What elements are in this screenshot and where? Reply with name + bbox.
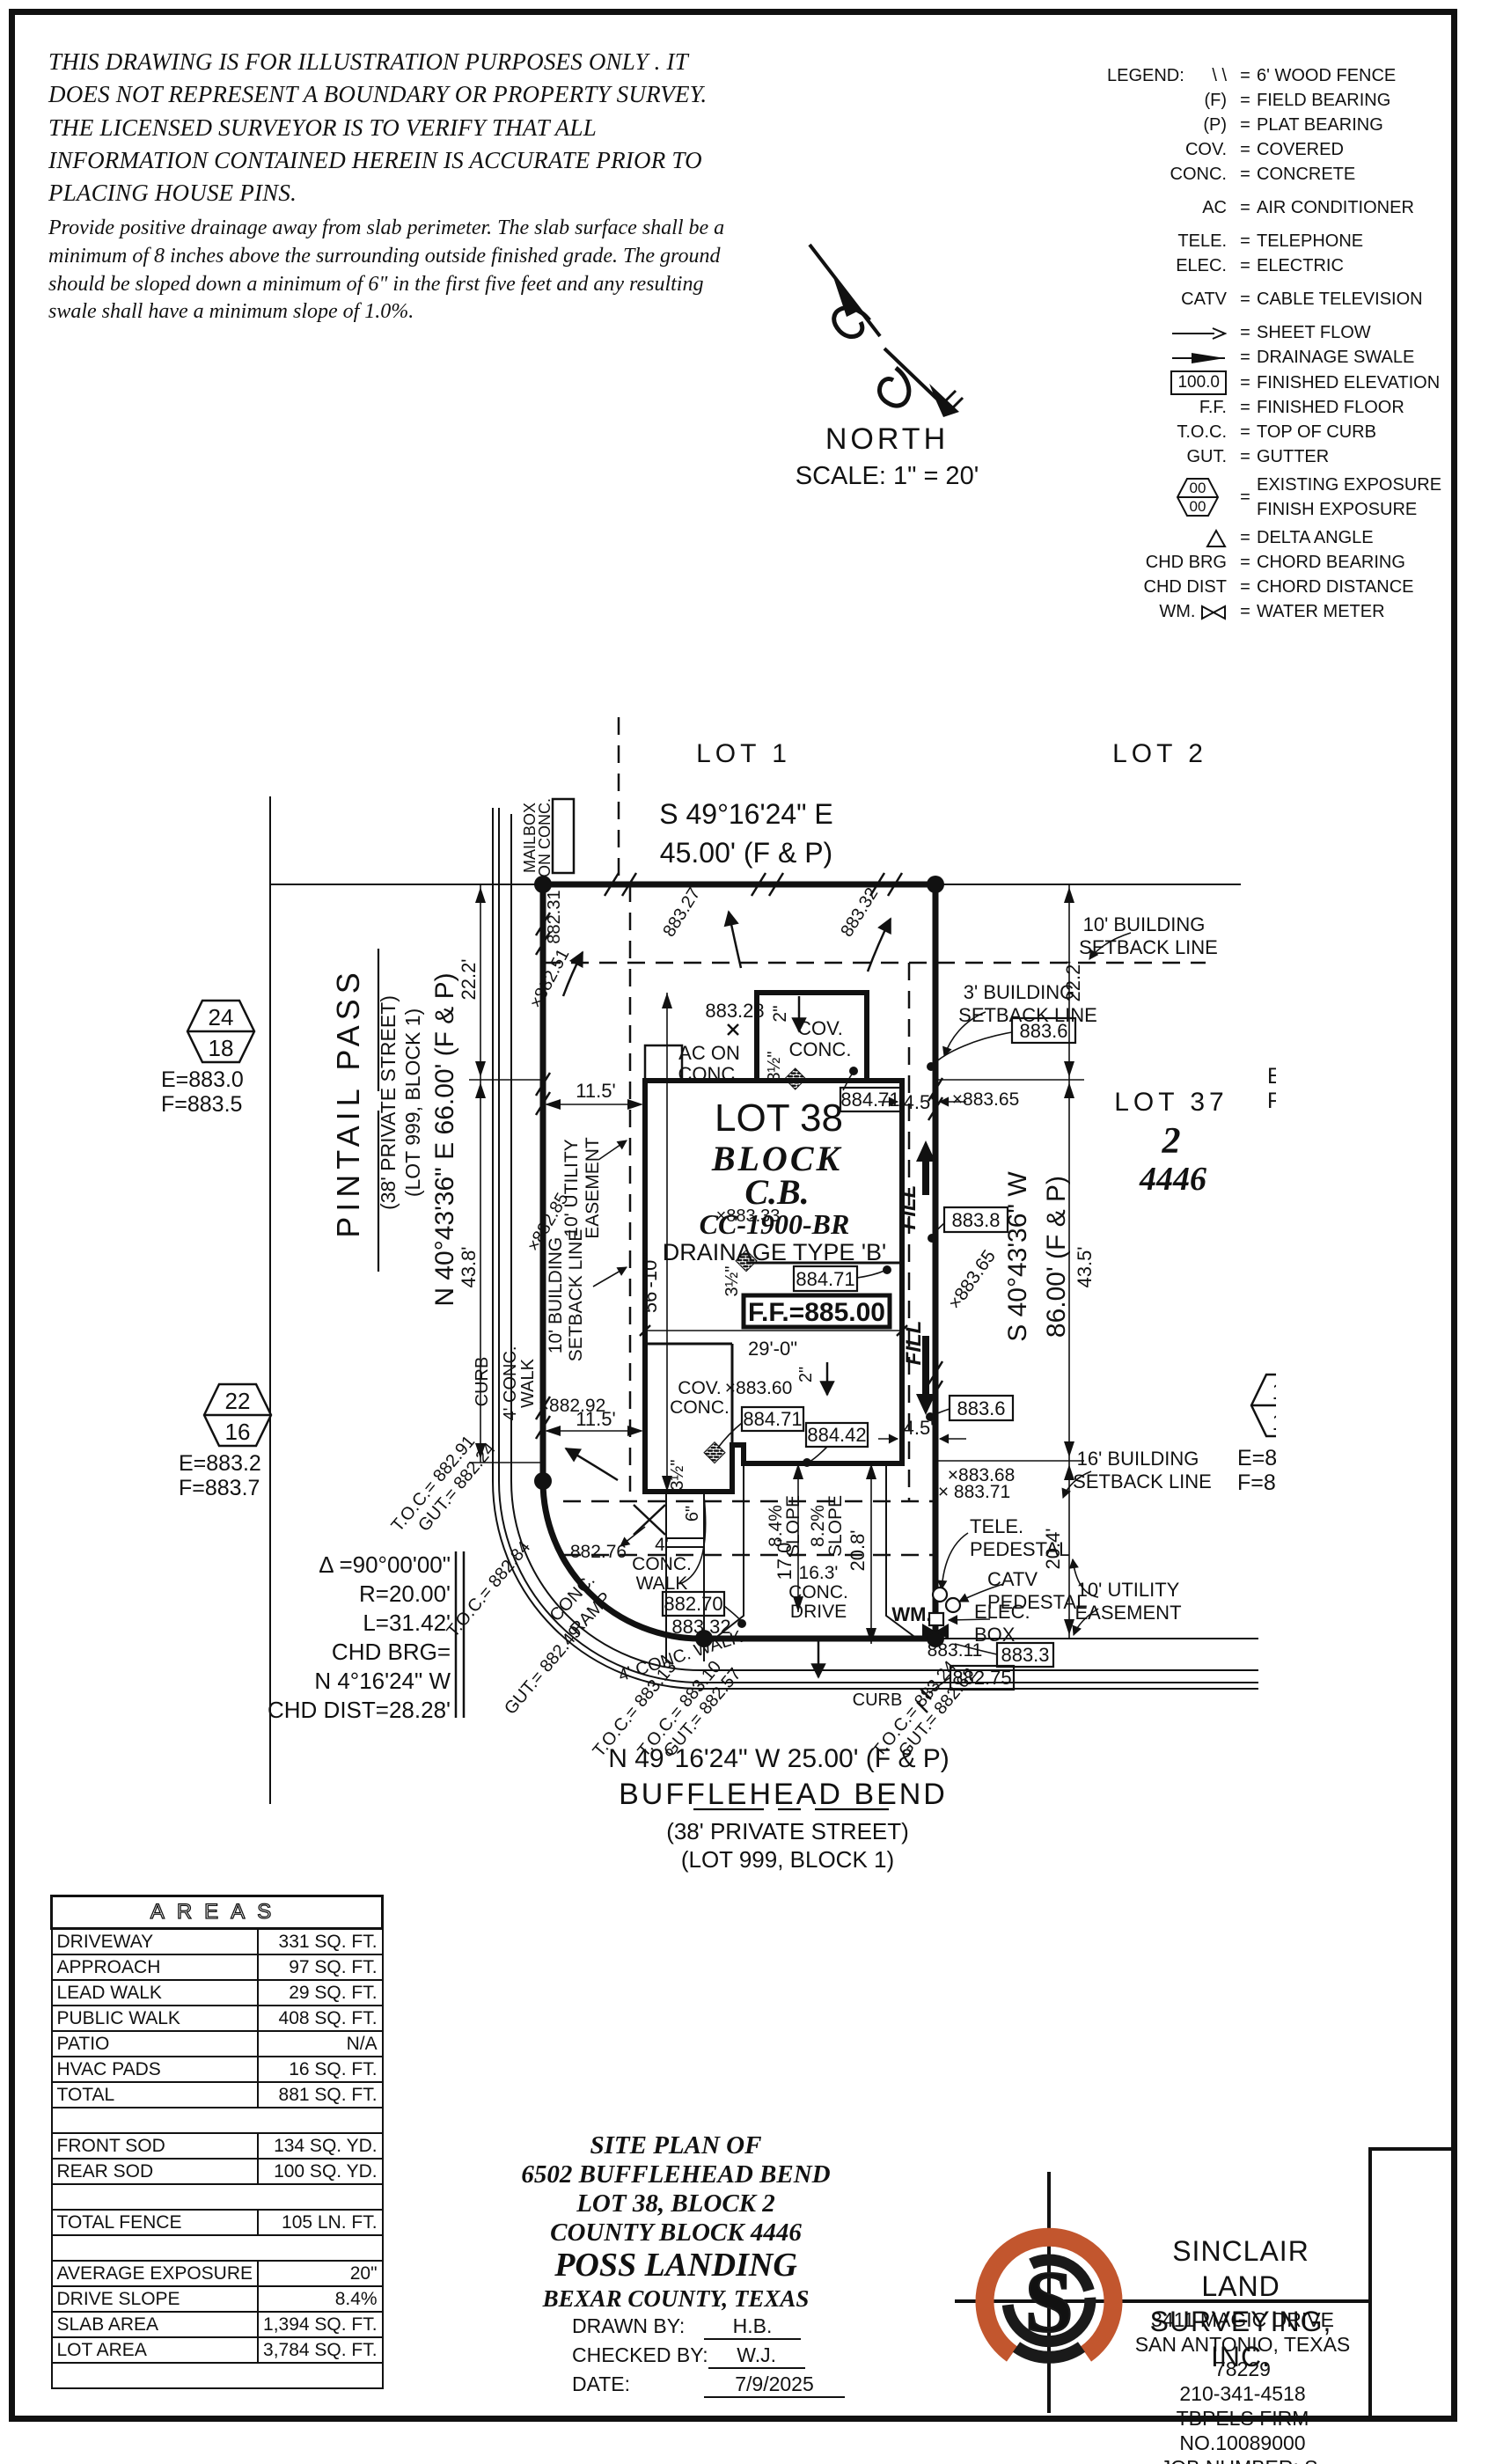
table-row-blank bbox=[52, 2363, 383, 2388]
legend-sym: TELE. bbox=[1107, 229, 1234, 253]
legend-row: CHD DIST=CHORD DISTANCE bbox=[1107, 575, 1452, 599]
legend-desc: TELEPHONE bbox=[1257, 229, 1452, 253]
curve-chd-brg-label: CHD BRG= bbox=[332, 1639, 451, 1665]
curb-label-left: CURB bbox=[473, 1357, 492, 1407]
title-block: SITE PLAN OF 6502 BUFFLEHEAD BEND LOT 38… bbox=[502, 2131, 850, 2313]
setback-3-label-1: 3' BUILDING bbox=[964, 981, 1074, 1003]
firm-registration: TBPELS FIRM NO.10089000 bbox=[1119, 2406, 1366, 2455]
equals: = bbox=[1234, 395, 1257, 420]
equals: = bbox=[1234, 287, 1257, 312]
scale-label: SCALE: 1" = 20' bbox=[796, 462, 979, 490]
legend-desc: WATER METER bbox=[1257, 599, 1452, 624]
boxed-elevation: 883.3 bbox=[1001, 1644, 1049, 1666]
dim-2in-drive: 2" bbox=[796, 1367, 816, 1382]
legend: LEGEND: \ \ = 6' WOOD FENCE (F)=FIELD BE… bbox=[1107, 63, 1452, 624]
water-meter-icon: WM. bbox=[1107, 599, 1234, 624]
drainage-type: DRAINAGE TYPE 'B' bbox=[663, 1239, 886, 1265]
areas-title: AREAS bbox=[52, 1896, 383, 1929]
title-lot-block: LOT 38, BLOCK 2 bbox=[502, 2189, 850, 2218]
area-label: LEAD WALK bbox=[52, 1980, 259, 2006]
catv-pedestal-icon bbox=[946, 1598, 960, 1612]
wood-fence-icon: \ \ bbox=[1192, 63, 1234, 88]
title-county-block: COUNTY BLOCK 4446 bbox=[502, 2218, 850, 2248]
equals: = bbox=[1234, 550, 1257, 575]
table-row: REAR SOD100 SQ. YD. bbox=[52, 2159, 383, 2184]
disclaimer-caps: THIS DRAWING IS FOR ILLUSTRATION PURPOSE… bbox=[48, 46, 752, 209]
firm-address: 3411 MAGIC DRIVE SAN ANTONIO, TEXAS 7822… bbox=[1119, 2307, 1366, 2464]
setback-10-label-1: 10' BUILDING bbox=[1083, 913, 1206, 935]
dim-3half: 3½" bbox=[765, 1052, 784, 1082]
lot37-block: 2 bbox=[1162, 1121, 1181, 1162]
area-label: PUBLIC WALK bbox=[52, 2006, 259, 2031]
elec-box-label-1: ELEC. bbox=[974, 1601, 1030, 1623]
legend-title: LEGEND: bbox=[1107, 63, 1192, 88]
catv-pedestal-label-1: CATV bbox=[987, 1568, 1038, 1590]
bufflehead-sub-2: (LOT 999, BLOCK 1) bbox=[681, 1846, 894, 1873]
dim-22-2-left: 22.2' bbox=[458, 958, 480, 1000]
legend-desc: CONCRETE bbox=[1257, 162, 1452, 187]
table-row: TOTAL881 SQ. FT. bbox=[52, 2082, 383, 2108]
hexagon-existing: 22 bbox=[225, 1388, 251, 1414]
pintail-sub-2: (LOT 999, BLOCK 1) bbox=[401, 1008, 424, 1197]
bearing-right-1: S 40°43'36" W bbox=[1003, 1171, 1032, 1342]
utility-easement-right-1: 10' UTILITY bbox=[1077, 1579, 1180, 1601]
area-label: DRIVE SLOPE bbox=[52, 2286, 259, 2312]
dim-43-8: 43.8' bbox=[458, 1246, 480, 1287]
table-row: DRIVE SLOPE8.4% bbox=[52, 2286, 383, 2312]
spot-elevation: 883.28 bbox=[705, 1000, 764, 1022]
drainage-swale-arrow-icon bbox=[1107, 345, 1234, 370]
spot-elevation: 882.31 bbox=[545, 890, 564, 943]
legend-row-finished-elevation: 100.0 =FINISHED ELEVATION bbox=[1107, 370, 1452, 395]
drawn-by-value: H.B. bbox=[704, 2314, 801, 2340]
utility-easement-right-2: EASEMENT bbox=[1074, 1602, 1181, 1624]
curb-label-bottom: CURB bbox=[853, 1690, 903, 1710]
dim-6in: 6" bbox=[683, 1506, 702, 1522]
logo-letter: S bbox=[1024, 2253, 1074, 2350]
table-row: SLAB AREA1,394 SQ. FT. bbox=[52, 2312, 383, 2337]
legend-sym: WM. bbox=[1159, 602, 1195, 621]
equals: = bbox=[1234, 320, 1257, 345]
legend-row-fence: LEGEND: \ \ = 6' WOOD FENCE bbox=[1107, 63, 1452, 88]
equals: = bbox=[1234, 137, 1257, 162]
legend-desc-two-line: EXISTING EXPOSUREFINISH EXPOSURE bbox=[1257, 473, 1452, 522]
setback-10-label-2: SETBACK LINE bbox=[1079, 936, 1218, 958]
area-value: 20" bbox=[258, 2261, 383, 2286]
legend-desc: PLAT BEARING bbox=[1257, 113, 1452, 137]
spot-elevation: ×882.51 bbox=[526, 946, 574, 1012]
site-plan-sheet: THIS DRAWING IS FOR ILLUSTRATION PURPOSE… bbox=[0, 0, 1496, 2464]
table-row: PUBLIC WALK408 SQ. FT. bbox=[52, 2006, 383, 2031]
curve-length: L=31.42' bbox=[363, 1610, 451, 1636]
table-row: FRONT SOD134 SQ. YD. bbox=[52, 2133, 383, 2159]
finish-grade: F=883.5 bbox=[161, 1092, 242, 1117]
legend-sym: CONC. bbox=[1107, 162, 1234, 187]
area-label: PATIO bbox=[52, 2031, 259, 2057]
legend-sym: (F) bbox=[1107, 88, 1234, 113]
legend-sym: ELEC. bbox=[1107, 253, 1234, 278]
legend-row-water-meter: WM. =WATER METER bbox=[1107, 599, 1452, 624]
legend-row: (F)=FIELD BEARING bbox=[1107, 88, 1452, 113]
area-value: 331 SQ. FT. bbox=[258, 1929, 383, 1955]
sinclair-logo-icon: S bbox=[968, 2220, 1130, 2382]
drive-dim-1: 16.3' bbox=[799, 1563, 839, 1583]
table-row: PATION/A bbox=[52, 2031, 383, 2057]
lot2-label: LOT 2 bbox=[1112, 739, 1207, 768]
legend-desc: SHEET FLOW bbox=[1257, 320, 1452, 345]
equals: = bbox=[1234, 345, 1257, 370]
setback-lines bbox=[543, 717, 1206, 1555]
setback-16-label-2: SETBACK LINE bbox=[1073, 1470, 1212, 1492]
titleblock-divider-vertical bbox=[1368, 2149, 1372, 2418]
lot37-county-block: 4446 bbox=[1139, 1161, 1206, 1198]
equals: = bbox=[1234, 599, 1257, 624]
ac-pad-label-2: CONC. bbox=[678, 1063, 741, 1085]
legend-sym: COV. bbox=[1107, 137, 1234, 162]
legend-row: AC=AIR CONDITIONER bbox=[1107, 195, 1452, 220]
legend-row: F.F.=FINISHED FLOOR bbox=[1107, 395, 1452, 420]
hexagon-finish: 18 bbox=[209, 1035, 234, 1061]
area-value: 3,784 SQ. FT. bbox=[258, 2337, 383, 2363]
legend-desc: ELECTRIC bbox=[1257, 253, 1452, 278]
area-value: 8.4% bbox=[258, 2286, 383, 2312]
dim-11-5-bottom: 11.5' bbox=[576, 1408, 615, 1430]
boxed-elevation: 884.42 bbox=[807, 1424, 866, 1446]
legend-row: T.O.C.=TOP OF CURB bbox=[1107, 420, 1452, 444]
blank-row bbox=[52, 2108, 383, 2133]
boxed-elevation: 883.8 bbox=[951, 1209, 1000, 1231]
exposure-existing: 00 bbox=[1190, 480, 1206, 496]
curve-chd-dist: CHD DIST=28.28' bbox=[268, 1697, 451, 1723]
legend-row-swale: =DRAINAGE SWALE bbox=[1107, 345, 1452, 370]
covered-conc-rear-2: CONC. bbox=[670, 1397, 730, 1418]
area-value: 105 LN. FT. bbox=[258, 2210, 383, 2235]
boxed-elevation: 884.71 bbox=[796, 1268, 854, 1290]
table-row: TOTAL FENCE105 LN. FT. bbox=[52, 2210, 383, 2235]
exposure-finish: 00 bbox=[1190, 498, 1206, 515]
legend-desc: FIELD BEARING bbox=[1257, 88, 1452, 113]
spot-elevation: ×883.65 bbox=[944, 1246, 1000, 1313]
mailbox-pad bbox=[553, 799, 574, 873]
boxed-elevation: 883.6 bbox=[1019, 1020, 1067, 1042]
tele-pedestal-label-2: PEDESTAL bbox=[970, 1538, 1069, 1560]
area-value: 29 SQ. FT. bbox=[258, 1980, 383, 2006]
area-label: AVERAGE EXPOSURE bbox=[52, 2261, 259, 2286]
setback-left-1: 10' BUILDING bbox=[546, 1237, 566, 1353]
area-label: DRIVEWAY bbox=[52, 1929, 259, 1955]
lot37-label: LOT 37 bbox=[1114, 1088, 1228, 1117]
equals: = bbox=[1234, 485, 1257, 510]
equals: = bbox=[1234, 575, 1257, 599]
legend-desc: GUTTER bbox=[1257, 444, 1452, 469]
legend-desc: FINISHED ELEVATION bbox=[1257, 370, 1452, 395]
legend-row: ELEC.=ELECTRIC bbox=[1107, 253, 1452, 278]
firm-phone: 210-341-4518 bbox=[1119, 2381, 1366, 2406]
legend-desc: 6' WOOD FENCE bbox=[1257, 63, 1452, 88]
bearing-bottom: N 49°16'24" W 25.00' (F & P) bbox=[608, 1744, 950, 1773]
drive-slope-2b: SLOPE bbox=[825, 1495, 846, 1557]
mailbox-label-2: ON CONC. bbox=[536, 798, 554, 877]
boxed-elevation: 884.71 bbox=[840, 1089, 899, 1111]
equals: = bbox=[1234, 525, 1257, 550]
dim-4-5-bottom: 4.5' bbox=[904, 1417, 935, 1439]
drawn-by-block: DRAWN BY:H.B. CHECKED BY:W.J. DATE:7/9/2… bbox=[572, 2314, 862, 2402]
table-row: DRIVEWAY331 SQ. FT. bbox=[52, 1929, 383, 1955]
leadwalk-label-3: WALK bbox=[636, 1573, 688, 1594]
existing-grade: E=883.0 bbox=[161, 1067, 244, 1092]
spot-elevation: 883.32 bbox=[837, 884, 882, 941]
table-row: HVAC PADS16 SQ. FT. bbox=[52, 2057, 383, 2082]
legend-desc: AIR CONDITIONER bbox=[1257, 195, 1452, 220]
walk-label-left-2: WALK bbox=[518, 1358, 538, 1408]
legend-desc: DELTA ANGLE bbox=[1257, 525, 1452, 550]
disclaimer-drainage-note: Provide positive drainage away from slab… bbox=[48, 215, 752, 326]
walk-label-left-1: 4' CONC. bbox=[501, 1346, 520, 1421]
finished-elevation-box-icon: 100.0 bbox=[1107, 370, 1234, 395]
legend-row: COV.=COVERED bbox=[1107, 137, 1452, 162]
hexagon-finish: 16 bbox=[225, 1419, 251, 1445]
dim-29-0: 29'-0" bbox=[748, 1338, 797, 1360]
dim-20-8: 20.8' bbox=[847, 1529, 869, 1571]
area-label: APPROACH bbox=[52, 1954, 259, 1980]
title-line: SITE PLAN OF bbox=[502, 2131, 850, 2160]
title-address: 6502 BUFFLEHEAD BEND bbox=[502, 2160, 850, 2189]
blank-row bbox=[52, 2184, 383, 2210]
firm-city: SAN ANTONIO, TEXAS 78229 bbox=[1119, 2332, 1366, 2381]
title-subdivision: POSS LANDING bbox=[502, 2248, 850, 2284]
area-label: FRONT SOD bbox=[52, 2133, 259, 2159]
exposure-hexagon-icon: 0000 bbox=[1107, 472, 1234, 523]
date-value: 7/9/2025 bbox=[704, 2372, 845, 2398]
dim-4-5-top: 4.5' bbox=[904, 1091, 935, 1113]
legend-row: CONC.=CONCRETE bbox=[1107, 162, 1452, 187]
area-value: N/A bbox=[258, 2031, 383, 2057]
spot-elevation: 882.76 bbox=[570, 1542, 627, 1562]
area-label: TOTAL bbox=[52, 2082, 259, 2108]
table-row-blank bbox=[52, 2184, 383, 2210]
legend-sym: (P) bbox=[1107, 113, 1234, 137]
hexagon-finish: 10 bbox=[1272, 1409, 1276, 1435]
finish-grade: F=884.2 bbox=[1237, 1470, 1276, 1495]
legend-row-exposure: 0000 = EXISTING EXPOSUREFINISH EXPOSURE bbox=[1107, 469, 1452, 525]
boxed-elevation: 882.70 bbox=[664, 1593, 722, 1615]
area-label: TOTAL FENCE bbox=[52, 2210, 259, 2235]
dim-56-10: 56'-10" bbox=[639, 1253, 661, 1313]
legend-desc: EXISTING EXPOSURE bbox=[1257, 473, 1452, 497]
setback-16-label-1: 16' BUILDING bbox=[1077, 1448, 1199, 1470]
spot-elevation: ×883.33 bbox=[716, 1206, 781, 1226]
bearing-top-2: 45.00' (F & P) bbox=[660, 837, 832, 869]
area-value: 100 SQ. YD. bbox=[258, 2159, 383, 2184]
equals: = bbox=[1234, 113, 1257, 137]
covered-conc-1: COV. bbox=[797, 1017, 843, 1039]
dim-3half: 3½" bbox=[722, 1266, 742, 1297]
bufflehead-bend-label: BUFFLEHEAD BEND bbox=[619, 1778, 948, 1811]
boxed-elevation-sample: 100.0 bbox=[1170, 370, 1227, 395]
spot-elevation: × 883.71 bbox=[938, 1482, 1010, 1502]
legend-sym: CATV bbox=[1107, 287, 1234, 312]
legend-desc: FINISH EXPOSURE bbox=[1257, 497, 1452, 522]
lot1-label: LOT 1 bbox=[696, 739, 791, 768]
north-arrow-icon bbox=[810, 245, 963, 417]
utility-easement-left-2: EASEMENT bbox=[583, 1137, 603, 1239]
equals: = bbox=[1234, 162, 1257, 187]
ac-pad bbox=[645, 1045, 682, 1081]
drive-dim-2: CONC. bbox=[788, 1582, 848, 1602]
tele-pedestal-label-1: TELE. bbox=[970, 1515, 1023, 1537]
ac-pad-label-1: AC ON bbox=[678, 1042, 740, 1064]
date-label: DATE: bbox=[572, 2372, 704, 2396]
checked-by-value: W.J. bbox=[708, 2343, 805, 2369]
fill-label: FILL bbox=[902, 1321, 926, 1366]
equals: = bbox=[1234, 63, 1257, 88]
legend-desc: COVERED bbox=[1257, 137, 1452, 162]
pintail-pass-label: PINTAIL PASS bbox=[330, 967, 366, 1237]
area-value: 134 SQ. YD. bbox=[258, 2133, 383, 2159]
equals: = bbox=[1234, 444, 1257, 469]
utility-easement-left-1: 10' UTILITY bbox=[561, 1139, 582, 1236]
legend-sym: AC bbox=[1107, 195, 1234, 220]
legend-sym: CHD DIST bbox=[1107, 575, 1234, 599]
firm-street: 3411 MAGIC DRIVE bbox=[1119, 2307, 1366, 2332]
legend-desc: FINISHED FLOOR bbox=[1257, 395, 1452, 420]
legend-row: GUT.=GUTTER bbox=[1107, 444, 1452, 469]
equals: = bbox=[1234, 88, 1257, 113]
table-row: APPROACH97 SQ. FT. bbox=[52, 1954, 383, 1980]
bufflehead-sub-1: (38' PRIVATE STREET) bbox=[666, 1818, 909, 1844]
area-label: SLAB AREA bbox=[52, 2312, 259, 2337]
lot38-label: LOT 38 bbox=[715, 1096, 843, 1140]
job-number: JOB NUMBER: S-202582538 bbox=[1119, 2455, 1366, 2464]
north-label: NORTH bbox=[825, 422, 949, 456]
hexagon-existing: 17 bbox=[1272, 1378, 1276, 1404]
curve-radius: R=20.00' bbox=[359, 1580, 451, 1607]
table-row-blank bbox=[52, 2235, 383, 2261]
finish-grade: F=883.7 bbox=[179, 1476, 260, 1500]
spot-elevation: 883.27 bbox=[659, 884, 704, 941]
blank-row bbox=[52, 2235, 383, 2261]
boxed-elevation: 883.6 bbox=[957, 1397, 1005, 1419]
leadwalk-label-2: CONC. bbox=[632, 1554, 692, 1574]
areas-table: AREAS DRIVEWAY331 SQ. FT. APPROACH97 SQ.… bbox=[50, 1895, 384, 2389]
pintail-sub-1: (38' PRIVATE STREET) bbox=[377, 995, 400, 1210]
dim-43-5: 43.5' bbox=[1074, 1246, 1096, 1287]
water-meter-label: WM. bbox=[891, 1603, 931, 1625]
area-value: 1,394 SQ. FT. bbox=[258, 2312, 383, 2337]
north-block: NORTH SCALE: 1" = 20' bbox=[757, 231, 1014, 495]
spot-elevation: 883.11 bbox=[928, 1640, 983, 1661]
equals: = bbox=[1234, 253, 1257, 278]
titleblock-divider-horizontal bbox=[1368, 2147, 1454, 2151]
legend-row-delta: =DELTA ANGLE bbox=[1107, 525, 1452, 550]
firm-name-1: SINCLAIR LAND bbox=[1131, 2233, 1351, 2304]
dim-11-5-top: 11.5' bbox=[576, 1080, 615, 1102]
spot-elevation: ×883.60 bbox=[725, 1378, 793, 1398]
existing-grade: E=883.6 bbox=[1267, 1064, 1276, 1089]
table-row: LOT AREA3,784 SQ. FT. bbox=[52, 2337, 383, 2363]
legend-sym: CHD BRG bbox=[1107, 550, 1234, 575]
area-label: REAR SOD bbox=[52, 2159, 259, 2184]
spot-elevation: ×883.65 bbox=[952, 1089, 1020, 1110]
legend-desc: CABLE TELEVISION bbox=[1257, 287, 1452, 312]
bearing-left: N 40°43'36" E 66.00' (F & P) bbox=[430, 972, 459, 1306]
boxed-elevation: 884.71 bbox=[743, 1408, 802, 1430]
existing-grade: E=883.2 bbox=[179, 1451, 261, 1476]
title-county: BEXAR COUNTY, TEXAS bbox=[502, 2284, 850, 2313]
legend-desc: CHORD DISTANCE bbox=[1257, 575, 1452, 599]
disclaimer-block: THIS DRAWING IS FOR ILLUSTRATION PURPOSE… bbox=[48, 46, 752, 326]
finish-grade: F=884.1 bbox=[1267, 1089, 1276, 1113]
legend-desc: TOP OF CURB bbox=[1257, 420, 1452, 444]
legend-row: (P)=PLAT BEARING bbox=[1107, 113, 1452, 137]
leadwalk-label-1: 4' bbox=[655, 1535, 669, 1555]
covered-conc-2: CONC. bbox=[789, 1038, 852, 1060]
bearing-right-2: 86.00' (F & P) bbox=[1042, 1176, 1071, 1338]
plan-drawing: LOT 1 LOT 2 S 49°16'24" E 45.00' (F & P)… bbox=[132, 669, 1276, 1918]
area-value: 408 SQ. FT. bbox=[258, 2006, 383, 2031]
curve-delta: Δ =90°00'00" bbox=[319, 1551, 451, 1578]
equals: = bbox=[1234, 195, 1257, 220]
legend-row: CHD BRG=CHORD BEARING bbox=[1107, 550, 1452, 575]
dim-2in: 2" bbox=[770, 1005, 790, 1022]
bearing-top-1: S 49°16'24" E bbox=[659, 798, 833, 830]
sheet-flow-arrow-icon bbox=[1107, 320, 1234, 345]
fill-label: FILL bbox=[897, 1185, 920, 1230]
tele-pedestal-icon bbox=[933, 1588, 947, 1602]
drawn-by-label: DRAWN BY: bbox=[572, 2314, 704, 2338]
legend-desc: CHORD BEARING bbox=[1257, 550, 1452, 575]
curve-chd-brg: N 4°16'24" W bbox=[314, 1668, 451, 1694]
table-row: LEAD WALK29 SQ. FT. bbox=[52, 1980, 383, 2006]
legend-sym: T.O.C. bbox=[1107, 420, 1234, 444]
equals: = bbox=[1234, 420, 1257, 444]
dim-3half: 3½" bbox=[668, 1460, 687, 1491]
dim-17-0: 17.0' bbox=[774, 1538, 796, 1580]
area-label: LOT AREA bbox=[52, 2337, 259, 2363]
legend-sym: F.F. bbox=[1107, 395, 1234, 420]
legend-sym: GUT. bbox=[1107, 444, 1234, 469]
legend-desc: DRAINAGE SWALE bbox=[1257, 345, 1452, 370]
equals: = bbox=[1234, 229, 1257, 253]
legend-row-sheet-flow: =SHEET FLOW bbox=[1107, 320, 1452, 345]
checked-by-label: CHECKED BY: bbox=[572, 2343, 708, 2367]
covered-conc-rear-1: COV. bbox=[678, 1378, 721, 1398]
toc-gut-label: GUT.= 882.49 bbox=[501, 1623, 586, 1719]
area-value: 97 SQ. FT. bbox=[258, 1954, 383, 1980]
hexagon-existing: 24 bbox=[209, 1004, 234, 1030]
table-row-blank bbox=[52, 2108, 383, 2133]
legend-row: TELE.=TELEPHONE bbox=[1107, 229, 1452, 253]
delta-triangle-icon bbox=[1107, 525, 1234, 550]
blank-row bbox=[52, 2363, 383, 2388]
equals: = bbox=[1234, 370, 1257, 395]
finished-floor-elevation: F.F.=885.00 bbox=[748, 1298, 885, 1327]
area-label: HVAC PADS bbox=[52, 2057, 259, 2082]
setback-left-2: SETBACK LINE bbox=[566, 1229, 586, 1362]
drive-dim-3: DRIVE bbox=[790, 1602, 847, 1622]
table-row: AVERAGE EXPOSURE20" bbox=[52, 2261, 383, 2286]
area-value: 16 SQ. FT. bbox=[258, 2057, 383, 2082]
legend-row: CATV=CABLE TELEVISION bbox=[1107, 287, 1452, 312]
area-value: 881 SQ. FT. bbox=[258, 2082, 383, 2108]
existing-grade: E=883.6 bbox=[1237, 1446, 1276, 1470]
